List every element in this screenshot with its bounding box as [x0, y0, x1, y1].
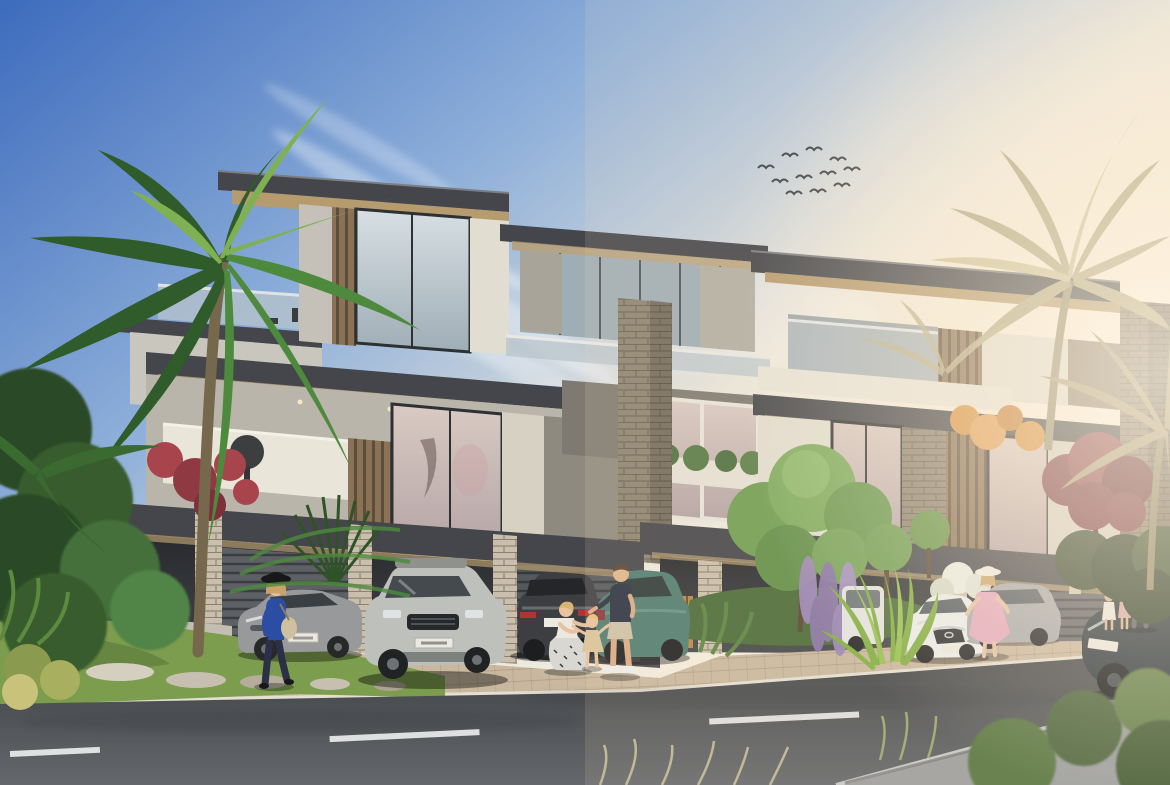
- car-rear-window: [526, 578, 588, 596]
- interior-warm-reflection: [452, 444, 488, 496]
- stepping-stone: [310, 678, 350, 690]
- wheel-hub: [472, 655, 482, 665]
- stepping-stone: [86, 663, 154, 681]
- road-shading: [20, 710, 580, 734]
- shrub-flowers: [2, 674, 38, 710]
- soffit-downlight: [298, 400, 303, 405]
- louver-slats: [332, 207, 356, 346]
- bush: [110, 570, 190, 650]
- rendering-canvas: [0, 0, 1170, 785]
- villa-street-render: [0, 0, 1170, 785]
- person-shoe: [284, 679, 294, 685]
- wheel-hub: [387, 658, 399, 670]
- car-grille: [407, 614, 459, 630]
- car-wheel: [523, 639, 545, 661]
- stepping-stone: [166, 672, 226, 688]
- wheel-hub: [334, 643, 342, 651]
- car-shadow: [358, 671, 508, 689]
- person-shoe: [259, 683, 269, 689]
- red-plant: [233, 479, 259, 505]
- handbag: [281, 617, 297, 639]
- warm-wash: [585, 0, 1170, 785]
- shrub: [40, 660, 80, 700]
- car-taillight: [520, 612, 536, 618]
- wall-panel: [520, 250, 562, 334]
- atmosphere-overlay: [585, 0, 1170, 785]
- car-headlight: [465, 610, 483, 618]
- car-headlight: [383, 610, 401, 618]
- roof-vent: [292, 308, 298, 322]
